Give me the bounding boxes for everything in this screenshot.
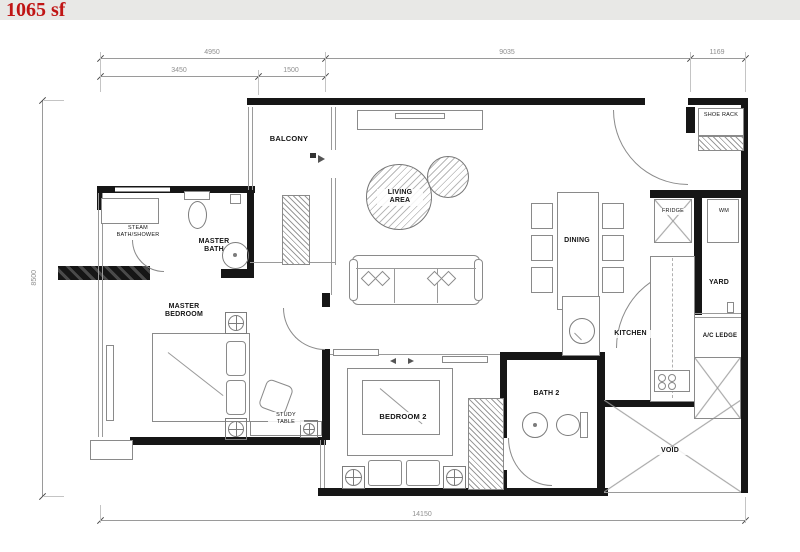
label-void: VOID (648, 447, 692, 455)
fridge-box (654, 199, 692, 243)
dining-chair (531, 203, 553, 229)
sofa-armrest-left (349, 259, 358, 301)
bath2-toilet-bowl (556, 414, 580, 436)
dim-8500: 8500 (31, 270, 38, 286)
sliding-door-panel-right (442, 356, 488, 363)
window-mullion (106, 345, 114, 421)
dim-line-bottom (100, 520, 745, 521)
bath2-door-arc (508, 438, 552, 486)
window-balcony-living-a (331, 107, 332, 150)
sofa-back-line (356, 268, 476, 269)
dim-14150: 14150 (372, 511, 472, 518)
dim-ext (44, 100, 64, 101)
dining-chair (531, 267, 553, 293)
dim-1169: 1169 (667, 49, 767, 56)
closet-hangers (282, 195, 310, 265)
floor-plan: 1065 sf 4950 9035 1169 3450 1500 8500 14… (0, 0, 800, 552)
label-balcony: BALCONY (258, 134, 320, 143)
tv-set (395, 113, 445, 119)
label-yard: YARD (697, 279, 741, 287)
window-balcony-living-b (335, 107, 336, 150)
kitchen-sink (569, 318, 595, 344)
nightstand-lamp (225, 418, 247, 440)
window-balcony-left-b (252, 107, 253, 190)
window-masterbath-top (115, 187, 170, 192)
label-shoe-rack: SHOE RACK (700, 112, 742, 119)
bed2-pillow (368, 460, 402, 486)
balcony-door-mark (310, 153, 316, 158)
window-left-inner (102, 193, 103, 437)
wall-top-right (688, 98, 748, 105)
dim-ext (100, 505, 101, 523)
window-living-low (331, 265, 332, 295)
label-fridge: FRIDGE (655, 208, 691, 215)
window-balcony-left-a (248, 107, 249, 190)
sofa-split-a (394, 268, 395, 303)
dim-4950: 4950 (162, 49, 262, 56)
wall-masterbed-right (322, 349, 330, 440)
sliding-door-panel-left (333, 349, 379, 356)
wall-ledge-bar (58, 266, 150, 280)
label-bath2: BATH 2 (524, 390, 569, 398)
label-steam-bath: STEAM BATH/SHOWER (110, 225, 166, 238)
dining-table (557, 192, 599, 310)
dim-line-left (42, 100, 43, 496)
label-ac-ledge: A/C LEDGE (695, 333, 745, 340)
shower-head (230, 194, 241, 204)
slide-arrow-left-icon (390, 358, 396, 364)
nightstand-lamp (225, 312, 247, 334)
master-bed-pillow (226, 341, 246, 376)
nightstand-lamp (443, 466, 466, 489)
study-chair (258, 378, 295, 416)
bath2-toilet-tank (580, 412, 588, 438)
shoe-rack-shelf (698, 136, 744, 151)
dim-line-top-sub (100, 76, 325, 77)
sofa-armrest-right (474, 259, 483, 301)
ac-ledge-hatch (694, 357, 741, 419)
wall-masterbath-right (247, 190, 254, 278)
washing-machine-box (707, 199, 739, 243)
toilet-tank (184, 191, 210, 200)
yard-ac-line-a (694, 313, 741, 314)
dim-9035: 9035 (457, 49, 557, 56)
window-bedroom2-left-b (324, 440, 325, 488)
wardrobe-hangers (468, 398, 504, 490)
living-rug-small (427, 156, 469, 198)
dining-chair (602, 203, 624, 229)
label-kitchen: KITCHEN (603, 330, 658, 338)
yard-ac-line-b (694, 317, 741, 318)
wall-top-main (247, 98, 645, 105)
stove-burner (658, 382, 666, 390)
bay-window (90, 440, 133, 460)
stove-burner (668, 382, 676, 390)
void-bottom-line (604, 492, 741, 493)
master-bed-pillow (226, 380, 246, 415)
dining-chair (602, 235, 624, 261)
dining-chair (602, 267, 624, 293)
wall-bedroom2-bottom (318, 488, 608, 496)
yard-gate-symbol (727, 302, 734, 313)
slide-arrow-right-icon (408, 358, 414, 364)
bed2-pillow (406, 460, 440, 486)
dim-ext (258, 70, 259, 95)
window-balcony-living-d (335, 178, 336, 265)
label-dining: DINING (552, 237, 602, 245)
window-left-outer (98, 193, 99, 437)
page-title: 1065 sf (6, 0, 65, 20)
window-balcony-living-c (331, 178, 332, 265)
label-wm: WM (710, 208, 738, 215)
wall-yard-left (694, 190, 702, 315)
toilet-bowl (188, 201, 207, 229)
dim-ext (100, 52, 101, 92)
entry-door-arc (613, 110, 688, 185)
dim-ext (745, 52, 746, 92)
label-living-area: LIVING AREA (377, 189, 423, 206)
wall-bath-bed-right (221, 269, 254, 278)
dining-chair (531, 235, 553, 261)
dim-line-top (100, 58, 745, 59)
header-band (0, 0, 800, 20)
stove-burner (668, 374, 676, 382)
wall-living-post-a (322, 293, 330, 307)
steam-shower-tray (101, 198, 159, 224)
dim-1500: 1500 (241, 67, 341, 74)
nightstand-lamp (342, 466, 365, 489)
masterbed-door-arc (283, 308, 325, 350)
label-bedroom2: BEDROOM 2 (368, 412, 438, 421)
bath2-basin-drain (533, 423, 537, 427)
label-master-bath: MASTER BATH (188, 238, 240, 255)
label-study-table: STUDY TABLE (268, 412, 304, 425)
dim-ext (325, 52, 326, 92)
label-master-bedroom: MASTER BEDROOM (152, 303, 216, 320)
window-bedroom2-left-a (320, 440, 321, 488)
dim-3450: 3450 (129, 67, 229, 74)
balcony-door-arrow-icon (318, 155, 325, 163)
wall-right (741, 98, 748, 493)
dim-ext (44, 496, 64, 497)
stove-burner (658, 374, 666, 382)
dim-ext (745, 497, 746, 523)
dim-ext (690, 52, 691, 92)
